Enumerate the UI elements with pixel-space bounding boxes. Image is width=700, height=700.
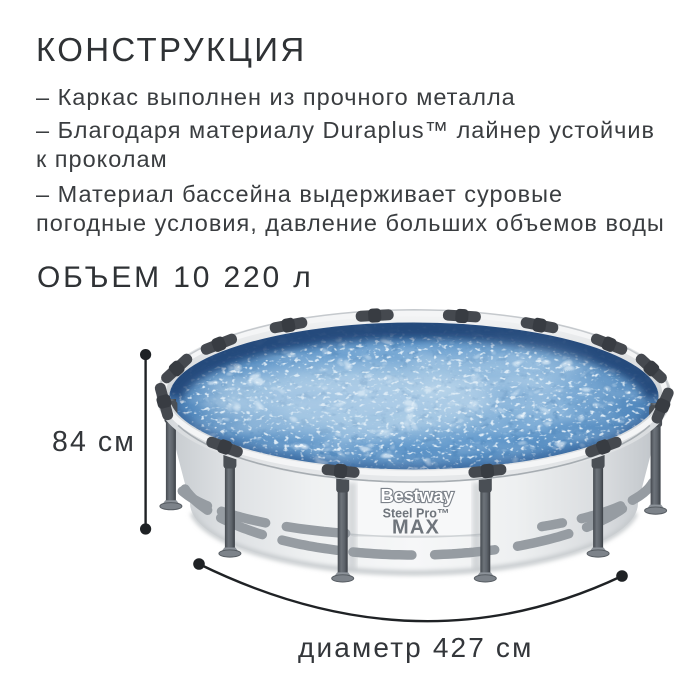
svg-text:Bestway: Bestway <box>381 485 455 506</box>
svg-text:MAX: MAX <box>392 517 440 539</box>
